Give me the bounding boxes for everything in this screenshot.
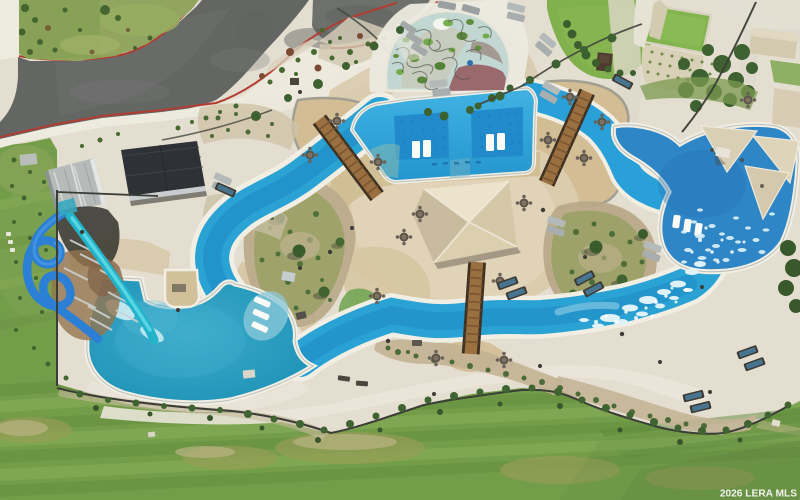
svg-text:2026 LERA MLS: 2026 LERA MLS <box>720 489 797 500</box>
